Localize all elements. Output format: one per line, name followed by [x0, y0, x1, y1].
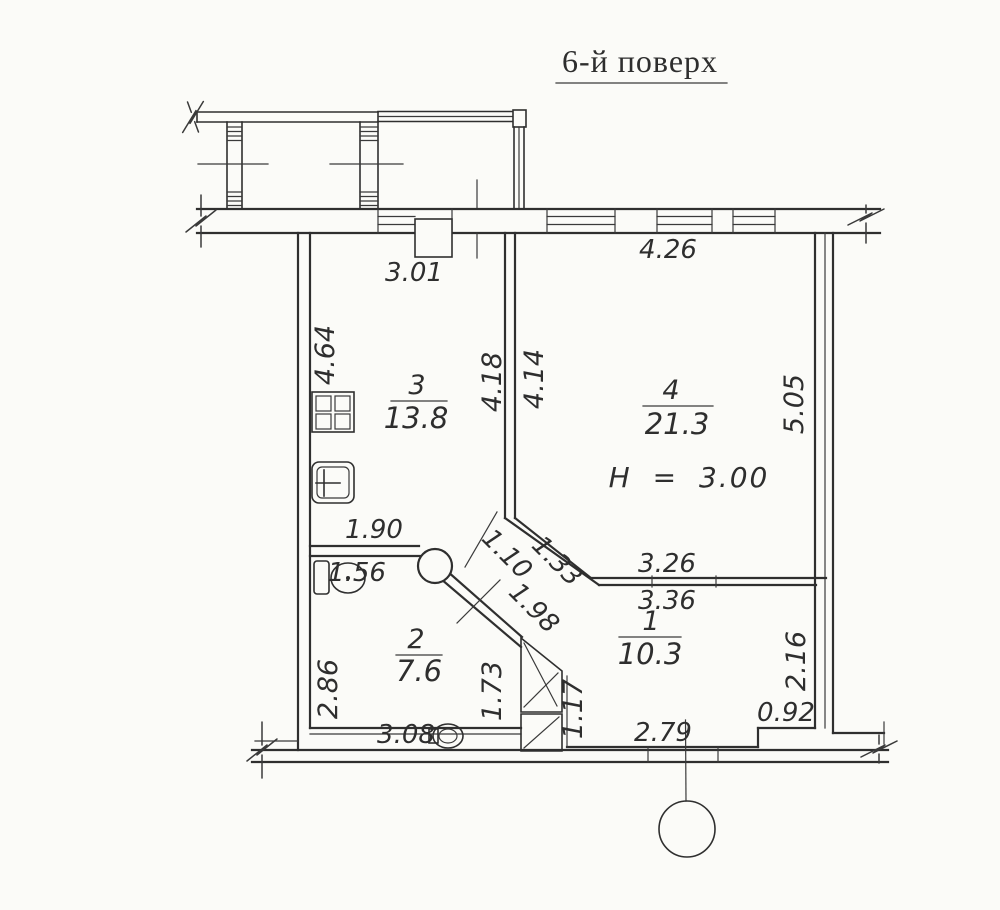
room-area: 7.6	[396, 654, 442, 688]
floor-plan-drawing: 6-й поверх 3.01 4.26 1.90 1.56 3.26 3.36…	[0, 0, 1000, 910]
room-label-3: 3 13.8	[384, 370, 449, 435]
dim-shaft-side: 1.17	[558, 679, 589, 739]
page-title: 6-й поверх	[562, 43, 718, 79]
kitchen-sink-icon	[312, 462, 354, 503]
dim-bath-top: 1.90	[345, 515, 403, 545]
dim-hall-wall: 1.98	[503, 577, 565, 639]
room-area: 21.3	[645, 407, 710, 441]
floor-plan-page: 6-й поверх 3.01 4.26 1.90 1.56 3.26 3.36…	[0, 0, 1000, 910]
break-mark	[848, 205, 884, 243]
room-number: 3	[408, 370, 425, 401]
dim-room1-right: 2.16	[781, 631, 812, 691]
break-mark	[186, 195, 216, 247]
dim-living-left: 4.14	[519, 349, 550, 409]
dim-toilet-width: 1.56	[328, 558, 386, 588]
column-circle	[418, 549, 452, 583]
balcony-left	[197, 112, 403, 209]
dim-kitchen-left: 4.64	[310, 325, 341, 385]
ceiling-height-label: H = 3.00	[609, 461, 770, 494]
pillar-hatch	[360, 127, 378, 206]
callout-circle	[659, 801, 715, 857]
dim-living-right: 5.05	[779, 374, 810, 434]
room-number: 1	[642, 606, 659, 637]
pillar-hatch	[227, 127, 242, 206]
balcony-door-recess	[415, 219, 452, 257]
room-area: 13.8	[384, 401, 449, 435]
labels: 6-й поверх 3.01 4.26 1.90 1.56 3.26 3.36…	[310, 43, 815, 750]
dim-kitchen-right: 4.18	[477, 352, 508, 412]
dim-living-window: 4.26	[639, 235, 697, 265]
dim-corner-step: 0.92	[757, 698, 815, 728]
dim-room1-bottom: 2.79	[634, 718, 692, 748]
room-area: 10.3	[618, 637, 683, 671]
top-exterior-wall	[197, 209, 880, 258]
dim-bath-right: 1.73	[477, 661, 508, 721]
room-number: 2	[407, 624, 424, 655]
break-mark	[173, 97, 212, 137]
room-label-2: 2 7.6	[396, 624, 442, 688]
dim-bath-bottom: 3.08	[377, 720, 435, 750]
dim-kitchen-window: 3.01	[385, 258, 443, 288]
dim-bath-left: 2.86	[313, 659, 344, 719]
dim-living-bottom: 3.26	[638, 549, 696, 579]
room-label-4: 4 21.3	[643, 375, 713, 441]
loggia-glazed	[378, 110, 526, 209]
room-number: 4	[662, 375, 679, 406]
stove-icon	[312, 392, 354, 432]
